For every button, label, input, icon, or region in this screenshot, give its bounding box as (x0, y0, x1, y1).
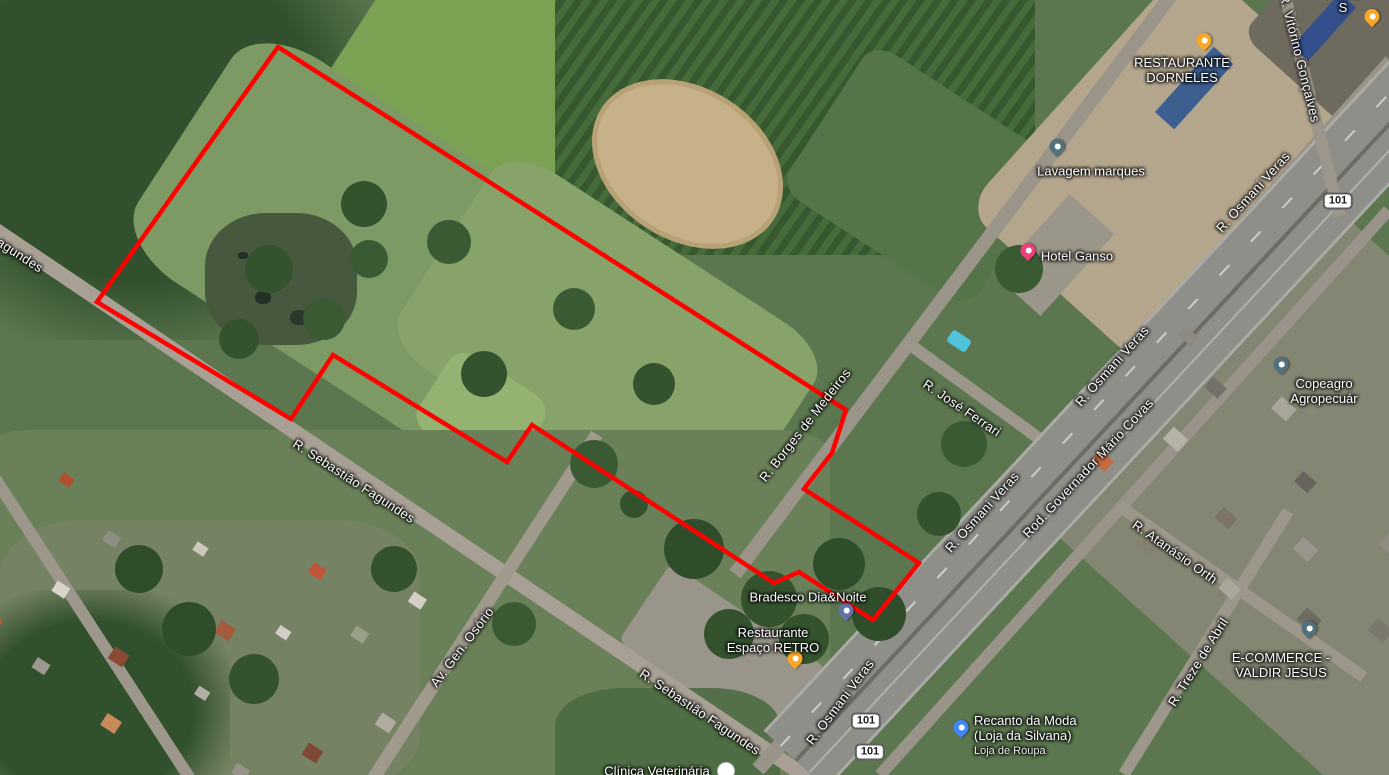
poi-label-restaurante-dorneles[interactable]: RESTAURANTE DORNELES (1122, 56, 1242, 86)
route-shield-101-mid: 101 (851, 713, 881, 730)
satellite-map[interactable]: agundes R. Sebastião Fagundes R. Sebasti… (0, 0, 1389, 775)
bottom-left-woods (0, 590, 230, 775)
poi-label-hotel-ganso[interactable]: Hotel Ganso (1041, 250, 1113, 265)
poi-subtitle: Loja de Roupa (974, 745, 1099, 758)
ponds (238, 252, 248, 259)
poi-label-bradesco[interactable]: Bradesco Dia&Noite (749, 591, 866, 606)
route-shield-101-bottom: 101 (855, 744, 885, 761)
poi-label-clinica-veterinaria[interactable]: Clínica Veterinária (604, 765, 710, 775)
route-shield-101-top: 101 (1323, 193, 1353, 210)
poi-label-lavagem-marques[interactable]: Lavagem marques (1037, 165, 1145, 180)
road-jose-ferrari (901, 336, 1058, 454)
veterinary-pin[interactable] (717, 762, 735, 775)
poi-label-ecommerce-valdir[interactable]: E-COMMERCE - VALDIR JESUS (1224, 651, 1339, 681)
poi-label-pizzas-partial[interactable]: Pizzas S (1320, 0, 1366, 16)
tree-clusters (620, 490, 648, 518)
swimming-pool (946, 329, 972, 353)
poi-label-recanto-da-moda[interactable]: Recanto da Moda (Loja da Silvana) Loja d… (974, 714, 1099, 758)
poi-label-copeagro[interactable]: Copeagro Agropecuár (1290, 377, 1357, 407)
pond-area (205, 213, 357, 345)
shopping-pin[interactable] (950, 717, 971, 738)
poi-title: Recanto da Moda (Loja da Silvana) (974, 713, 1077, 743)
poi-label-espaco-retro[interactable]: Restaurante Espaço RETRO (721, 626, 826, 656)
